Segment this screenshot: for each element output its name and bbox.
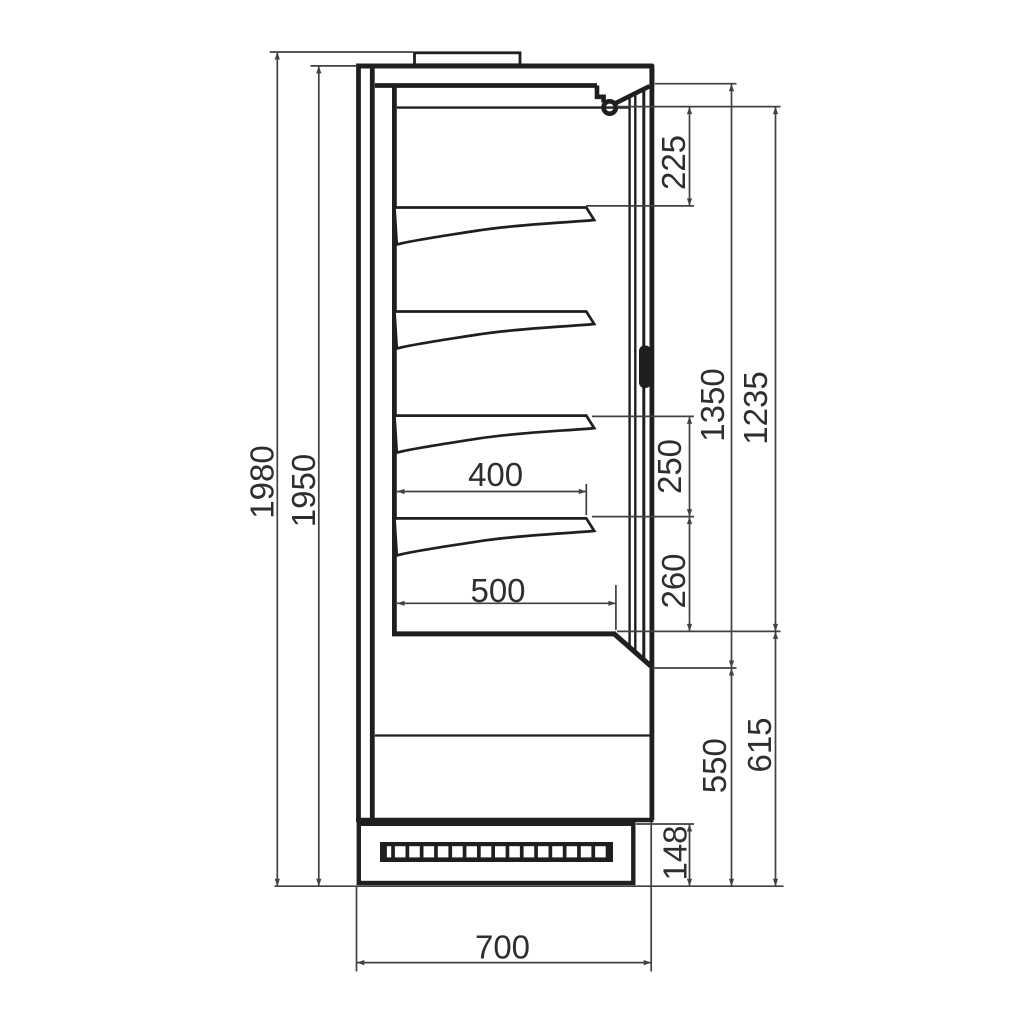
svg-text:550: 550: [696, 738, 733, 793]
svg-text:148: 148: [657, 825, 694, 880]
svg-text:700: 700: [475, 929, 530, 966]
svg-text:400: 400: [468, 456, 523, 493]
svg-text:250: 250: [651, 439, 688, 494]
svg-text:1235: 1235: [737, 371, 774, 444]
svg-text:1950: 1950: [285, 454, 322, 527]
svg-text:225: 225: [655, 135, 692, 190]
svg-text:500: 500: [470, 572, 525, 609]
svg-text:615: 615: [741, 717, 778, 772]
svg-text:260: 260: [655, 553, 692, 608]
svg-text:1980: 1980: [243, 445, 280, 518]
svg-text:1350: 1350: [694, 368, 731, 441]
